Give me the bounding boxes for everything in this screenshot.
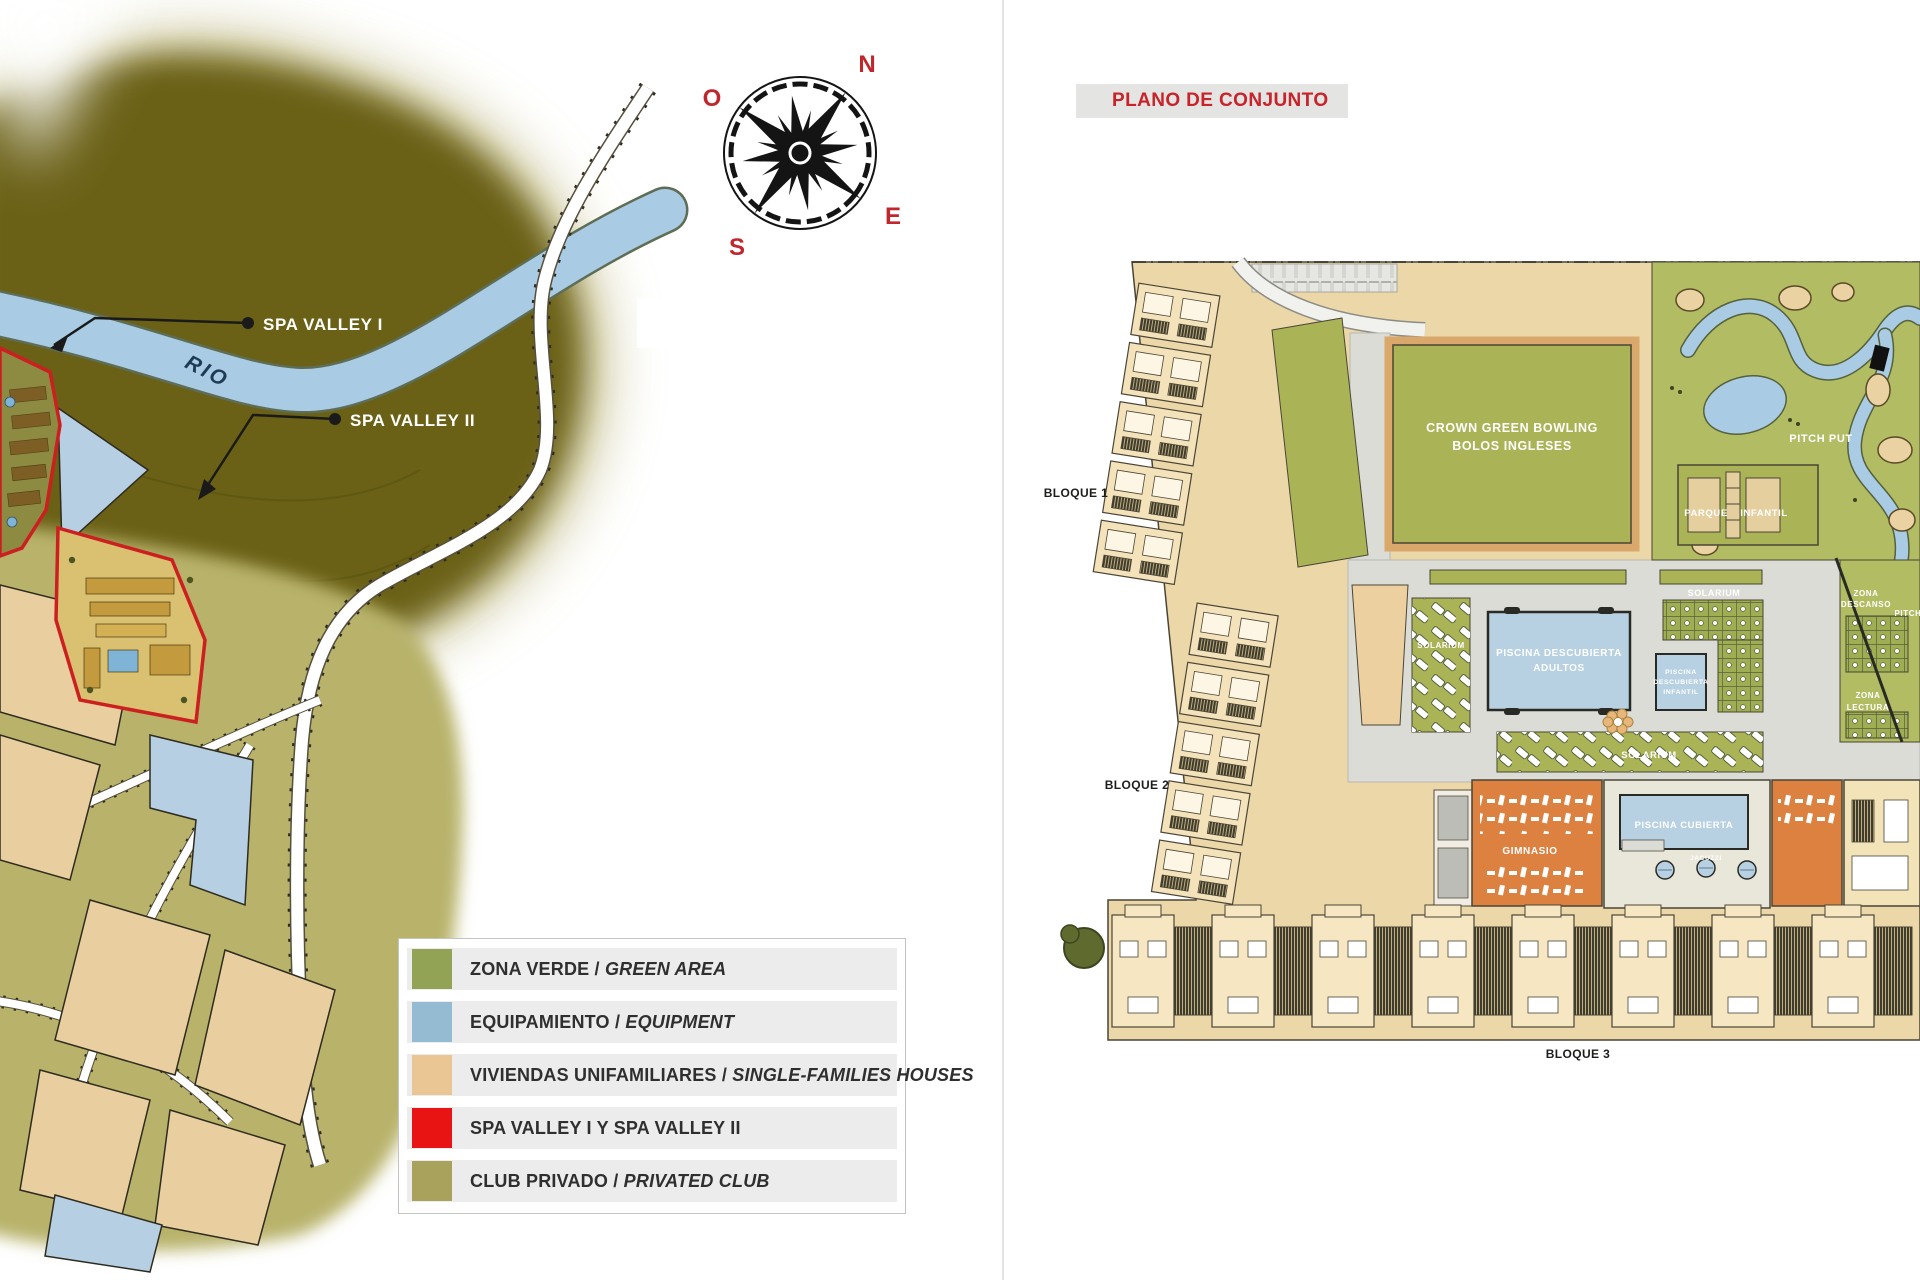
master-plan: CROWN GREEN BOWLING BOLOS INGLESES: [1044, 262, 1920, 1061]
pool-adults: PISCINA DESCUBIERTA ADULTOS: [1488, 607, 1630, 715]
hedge-right: [1660, 570, 1762, 584]
legend-swatch-blue: [412, 1002, 452, 1042]
legend-label-es: ZONA VERDE /: [470, 959, 605, 979]
plan-title-bar: PLANO DE CONJUNTO: [1076, 84, 1348, 118]
legend-swatch-green: [412, 949, 452, 989]
map-legend: ZONA VERDE / GREEN AREA EQUIPAMIENTO / E…: [398, 938, 906, 1214]
parque-label-2: INFANTIL: [1740, 508, 1788, 519]
bloque3-label: BLOQUE 3: [1546, 1047, 1611, 1061]
legend-label-es: CLUB PRIVADO /: [470, 1171, 624, 1191]
parque-infantil: PARQUE INFANTIL: [1678, 465, 1818, 545]
callout-label: SPA VALLEY I: [263, 315, 383, 334]
plan-canvas: RIO: [0, 0, 1920, 1280]
legend-swatch-red: [412, 1108, 452, 1148]
callout-label: SPA VALLEY II: [350, 411, 475, 430]
tree-cluster: [1061, 925, 1104, 968]
locker-annex: [1434, 790, 1472, 906]
legend-swatch-olive: [412, 1161, 452, 1201]
legend-row-club-privado: CLUB PRIVADO / PRIVATED CLUB: [407, 1160, 897, 1202]
parque-label-1: PARQUE: [1684, 508, 1728, 519]
pitch-partial-label: PITCH: [1895, 609, 1920, 618]
legend-row-viviendas: VIVIENDAS UNIFAMILIARES / SINGLE-FAMILIE…: [407, 1054, 897, 1096]
site-plan-page: { "left": { "compass": { "n": "N", "o": …: [0, 0, 1920, 1280]
zona-lectura-label-2: LECTURA: [1847, 703, 1889, 712]
east-building: [1844, 780, 1920, 906]
zona-descanso-label-2: DESCANSO: [1841, 600, 1891, 609]
blank-label-box: [637, 298, 715, 348]
bloque2-corner: [1352, 585, 1408, 725]
legend-label-en: EQUIPMENT: [625, 1012, 734, 1032]
legend-label-en: GREEN AREA: [605, 959, 726, 979]
bowling-label-2: BOLOS INGLESES: [1452, 439, 1572, 453]
pool-infant-label-1: PISCINA: [1665, 669, 1697, 676]
legend-row-equipamiento: EQUIPAMIENTO / EQUIPMENT: [407, 1001, 897, 1043]
pool-infant-label-3: INFANTIL: [1663, 689, 1698, 696]
zona-descanso-label-1: ZONA: [1853, 589, 1878, 598]
legend-label-es: SPA VALLEY I Y SPA VALLEY II: [470, 1118, 741, 1138]
legend-label-es: EQUIPAMIENTO /: [470, 1012, 625, 1032]
pool-infant: PISCINA DESCUBIERTA INFANTIL: [1653, 654, 1708, 710]
indoor-pool-hall: PISCINA CUBIERTA JACUZZI: [1604, 780, 1770, 908]
solarium-bottom-label: SOLARIUM: [1621, 750, 1676, 761]
compass-label-o: O: [703, 85, 722, 112]
legend-swatch-tan: [412, 1055, 452, 1095]
solarium-bottom: SOLARIUM: [1497, 732, 1763, 772]
pool-adults-label-2: ADULTOS: [1533, 663, 1585, 674]
legend-label-en: SINGLE-FAMILIES HOUSES: [732, 1065, 973, 1085]
bowling-label-1: CROWN GREEN BOWLING: [1426, 421, 1598, 435]
gimnasio-label: GIMNASIO: [1502, 846, 1557, 857]
compass-label-n: N: [858, 51, 875, 78]
pool-infant-label-2: DESCUBIERTA: [1653, 679, 1708, 686]
zona-lectura-label-1: ZONA: [1855, 691, 1880, 700]
pitch-put-label: PITCH PUT: [1789, 433, 1852, 445]
solarium-left: SOLARIUM: [1412, 598, 1470, 732]
pool-adults-label-1: PISCINA DESCUBIERTA: [1496, 648, 1622, 659]
hedge-left: [1430, 570, 1626, 584]
piscina-cubierta-label: PISCINA CUBIERTA: [1635, 820, 1734, 831]
bowling-green: CROWN GREEN BOWLING BOLOS INGLESES: [1389, 341, 1635, 547]
zona-descanso-lectura: ZONA DESCANSO PITCH ZONA LECTURA: [1836, 558, 1920, 742]
gimnasio-building: GIMNASIO: [1472, 780, 1602, 906]
legend-label-es: VIVIENDAS UNIFAMILIARES /: [470, 1065, 732, 1085]
solarium-left-label: SOLARIUM: [1417, 641, 1464, 650]
spa-furniture: [1778, 790, 1836, 830]
compass-label-e: E: [885, 203, 901, 230]
jacuzzi-label: JACUZZI: [1690, 855, 1722, 862]
solarium-top-label: SOLARIUM: [1688, 588, 1741, 598]
legend-label-en: PRIVATED CLUB: [624, 1171, 770, 1191]
compass-rose: N O E S: [694, 47, 907, 261]
compass-label-s: S: [729, 234, 745, 261]
plan-title: PLANO DE CONJUNTO: [1076, 84, 1329, 118]
bloque1-label: BLOQUE 1: [1044, 486, 1109, 500]
bloque2-label: BLOQUE 2: [1105, 778, 1170, 792]
legend-row-zona-verde: ZONA VERDE / GREEN AREA: [407, 948, 897, 990]
legend-row-spa-valley: SPA VALLEY I Y SPA VALLEY II: [407, 1107, 897, 1149]
